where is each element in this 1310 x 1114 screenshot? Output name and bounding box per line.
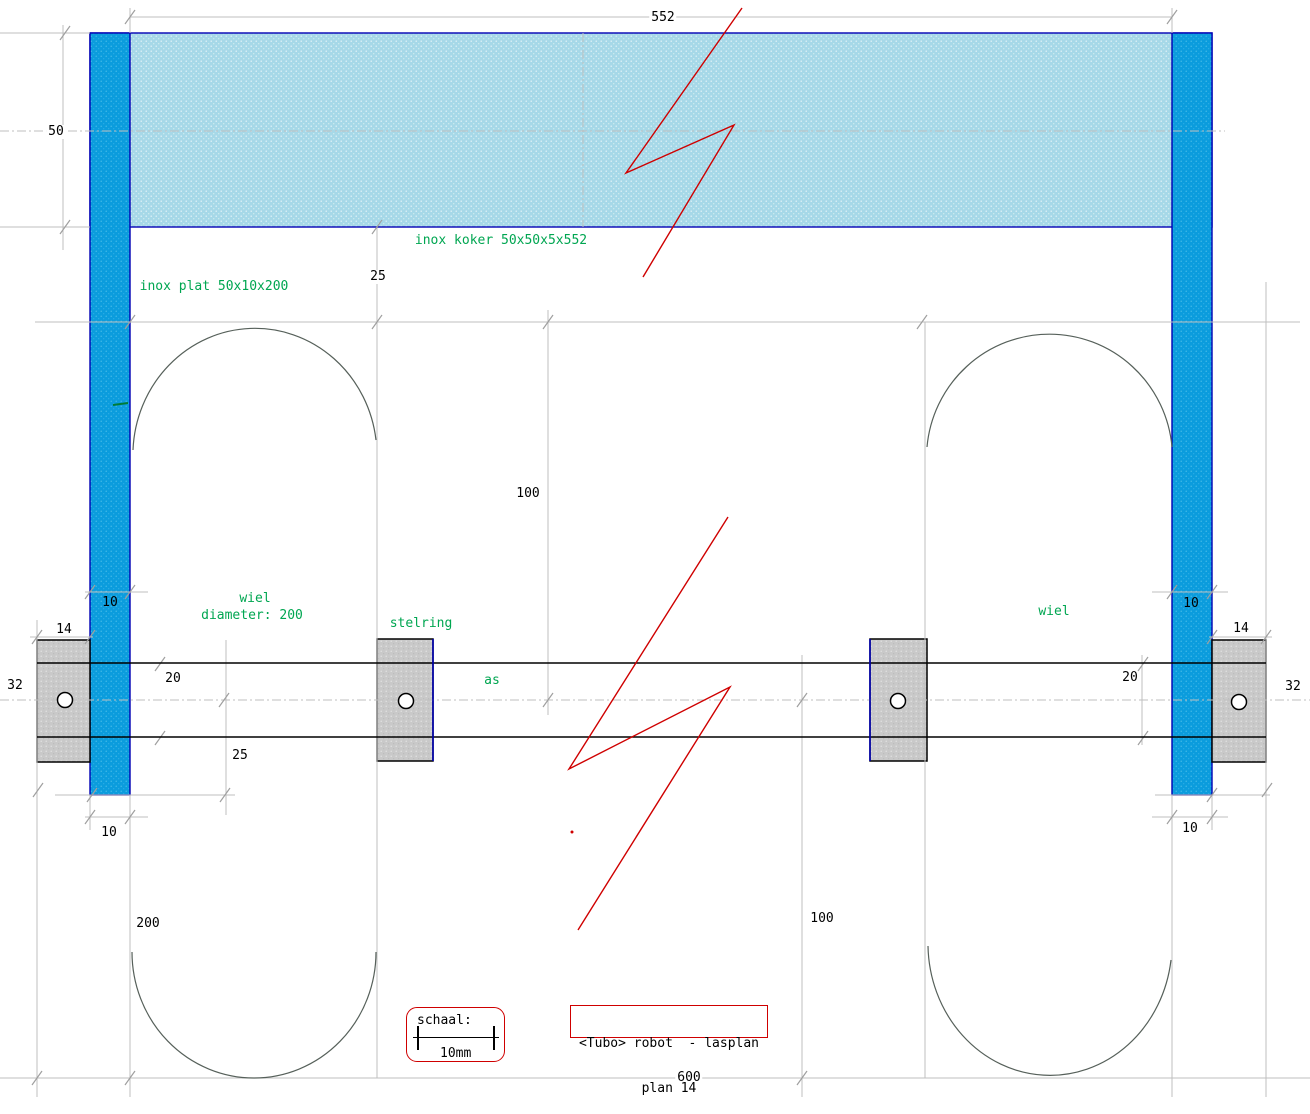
hole-outer-right [1232, 695, 1247, 710]
dim-total-top-width: 552 [649, 11, 676, 25]
wheel-left-bottom-arc [132, 952, 376, 1078]
dim-25-left: 25 [232, 749, 248, 763]
title-line1: <Tubo> robot - lasplan [571, 1036, 767, 1051]
dim-10-top-right: 10 [1183, 597, 1199, 611]
hole-inner-right [891, 694, 906, 709]
dim-32-right: 32 [1283, 680, 1303, 694]
label-stelring: stelring [390, 617, 453, 631]
hole-outer-left [58, 693, 73, 708]
inox-plat-left [90, 33, 130, 795]
dim-25-top: 25 [368, 270, 388, 284]
label-inox-koker: inox koker 50x50x5x552 [415, 234, 587, 248]
scale-block: schaal: 10mm [406, 1007, 505, 1062]
dim-20-right: 20 [1122, 671, 1138, 685]
dim-200-wheel: 200 [136, 917, 159, 931]
dim-10-bottom-left: 10 [101, 826, 117, 840]
label-inox-plat: inox plat 50x10x200 [140, 280, 289, 294]
dim-koker-height: 50 [46, 125, 66, 139]
wheel-right-bottom-arc [928, 946, 1171, 1075]
scale-bar-line [413, 1037, 499, 1038]
lasplan-drawing: 552 50 25 100 10 14 32 20 25 10 200 100 … [0, 0, 1310, 1114]
dim-20-left: 20 [165, 672, 181, 686]
label-as: as [484, 674, 500, 688]
label-wiel-left: wiel [239, 592, 270, 606]
dim-10-bottom-right: 10 [1182, 822, 1198, 836]
scale-label: schaal: [417, 1013, 472, 1028]
dim-100-bottom: 100 [810, 912, 833, 926]
title-line2: plan 14 [571, 1081, 767, 1096]
inox-plat-right [1172, 33, 1212, 795]
dim-32-left: 32 [5, 679, 25, 693]
wheel-left-top-arc [133, 328, 376, 450]
dim-10-top-left: 10 [102, 596, 118, 610]
scale-bar-tick-left [417, 1026, 419, 1050]
scale-value: 10mm [440, 1046, 471, 1061]
dim-14-left: 14 [56, 623, 72, 637]
drawing-canvas [0, 0, 1310, 1114]
wheel-right-top-arc [927, 334, 1172, 447]
label-wiel-diameter: diameter: 200 [201, 609, 303, 623]
scale-bar-tick-right [493, 1026, 495, 1050]
dim-100-top: 100 [516, 487, 539, 501]
dim-14-right: 14 [1233, 622, 1249, 636]
inox-koker-tube [90, 33, 1212, 227]
hole-inner-left [399, 694, 414, 709]
title-block: <Tubo> robot - lasplan plan 14 [570, 1005, 768, 1038]
stray-dot [571, 831, 574, 834]
label-wiel-right: wiel [1038, 605, 1069, 619]
break-line-middle [569, 517, 730, 930]
